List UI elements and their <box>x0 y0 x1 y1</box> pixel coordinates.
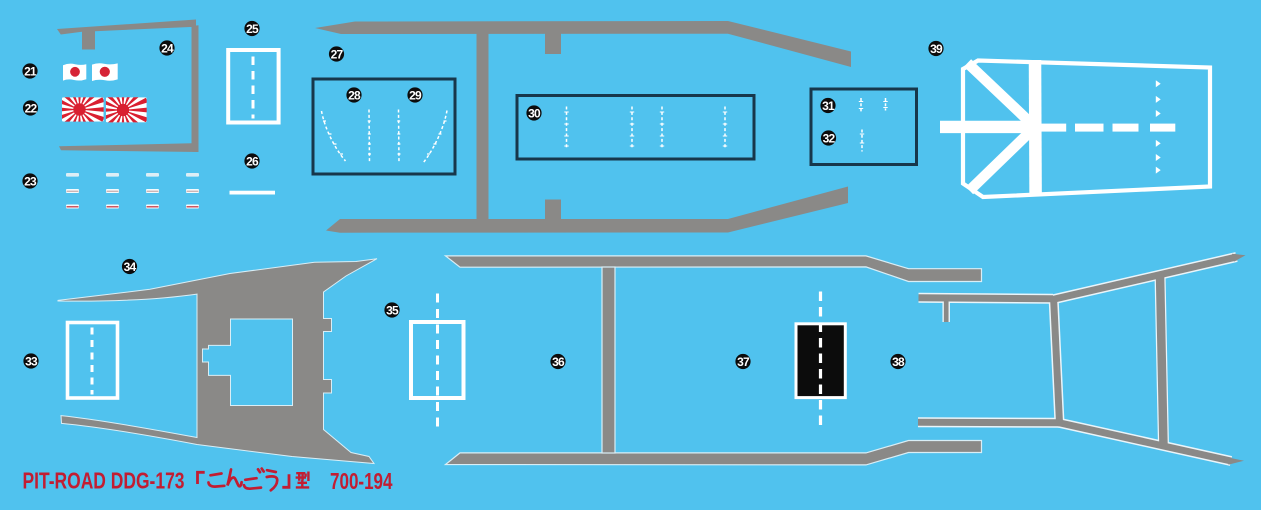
svg-text:24: 24 <box>161 41 174 55</box>
svg-text:21: 21 <box>24 64 37 78</box>
svg-text:700-194: 700-194 <box>330 468 393 494</box>
svg-text:34: 34 <box>124 260 137 274</box>
svg-text:22: 22 <box>25 101 38 115</box>
svg-text:23: 23 <box>24 174 37 188</box>
svg-text:33: 33 <box>25 354 38 368</box>
svg-text:26: 26 <box>246 154 259 168</box>
svg-text:36: 36 <box>552 355 565 369</box>
svg-text:25: 25 <box>246 22 259 36</box>
svg-text:31: 31 <box>822 99 835 113</box>
svg-text:30: 30 <box>528 106 541 120</box>
svg-text:38: 38 <box>892 355 905 369</box>
svg-text:PIT-ROAD DDG-173: PIT-ROAD DDG-173 <box>23 468 185 494</box>
svg-text:35: 35 <box>386 303 399 317</box>
svg-text:32: 32 <box>823 131 836 145</box>
svg-text:37: 37 <box>737 355 750 369</box>
svg-text:28: 28 <box>348 88 361 102</box>
svg-text:27: 27 <box>331 47 344 61</box>
svg-text:39: 39 <box>930 42 943 56</box>
svg-text:29: 29 <box>409 88 422 102</box>
